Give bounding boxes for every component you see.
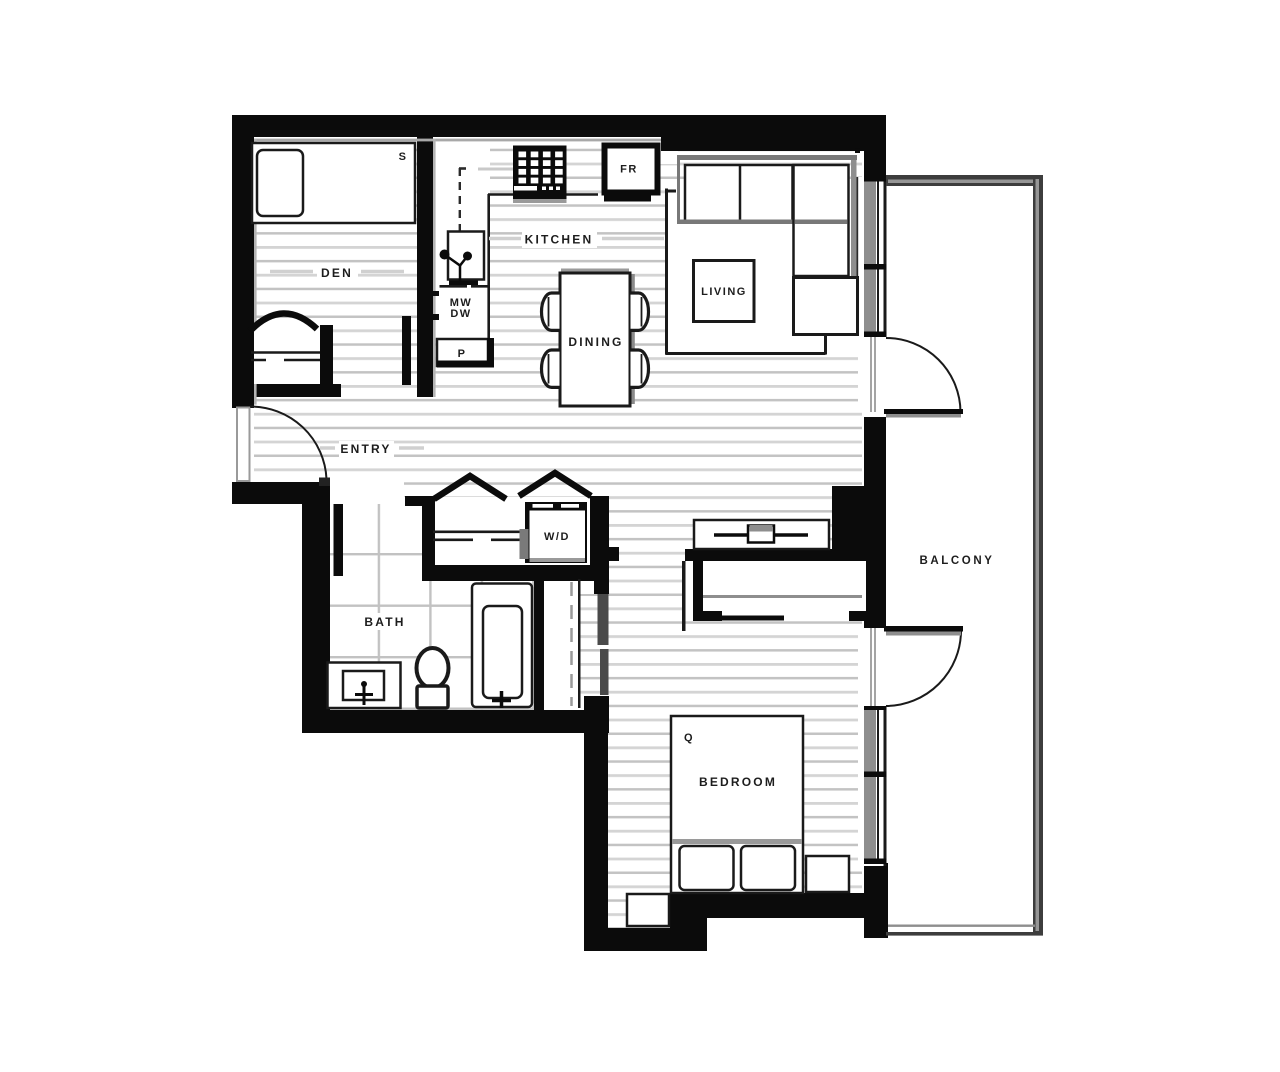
svg-text:DINING: DINING [568, 335, 623, 349]
svg-text:W/D: W/D [544, 531, 570, 543]
svg-text:Q: Q [684, 732, 694, 744]
svg-text:DEN: DEN [321, 266, 353, 280]
svg-text:FR: FR [620, 164, 638, 176]
svg-text:ENTRY: ENTRY [340, 442, 391, 456]
svg-text:BATH: BATH [364, 615, 405, 629]
svg-text:BALCONY: BALCONY [919, 555, 994, 567]
svg-text:LIVING: LIVING [701, 286, 747, 298]
svg-text:KITCHEN: KITCHEN [525, 233, 594, 247]
svg-text:P: P [458, 348, 467, 360]
svg-text:S: S [399, 151, 408, 163]
svg-text:BEDROOM: BEDROOM [699, 775, 777, 789]
svg-text:DW: DW [450, 308, 471, 320]
